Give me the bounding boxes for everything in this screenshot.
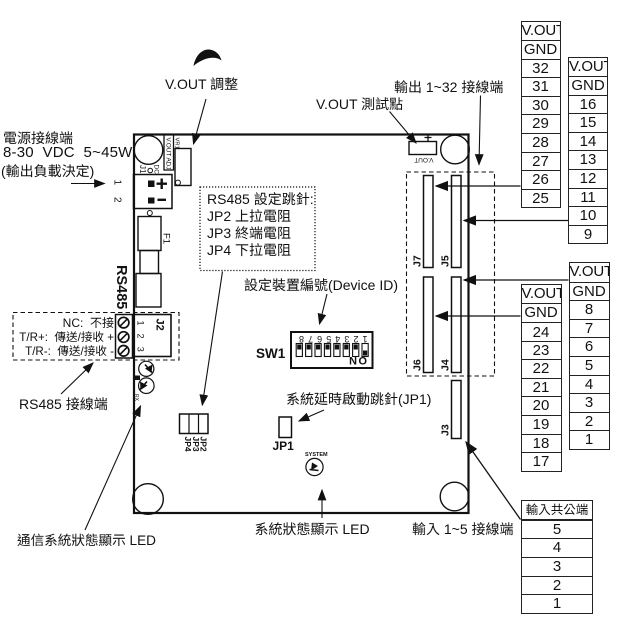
svg-text:RX: RX — [133, 394, 139, 402]
svg-text:J5: J5 — [440, 255, 452, 267]
svg-text:J1: J1 — [138, 165, 147, 174]
svg-text:V.OUT ADJ.: V.OUT ADJ. — [164, 138, 171, 172]
svg-text:J4: J4 — [440, 359, 452, 371]
svg-text:J7: J7 — [412, 255, 424, 267]
svg-text:RS485: RS485 — [113, 265, 129, 309]
svg-text:1: 1 — [112, 180, 123, 186]
svg-text:3: 3 — [136, 347, 146, 352]
svg-text:J6: J6 — [412, 359, 424, 371]
svg-text:ON: ON — [348, 354, 368, 366]
svg-text:2: 2 — [112, 197, 123, 203]
svg-text:DC: DC — [152, 165, 159, 175]
svg-text:JP4: JP4 — [183, 437, 193, 452]
svg-text:F1: F1 — [161, 233, 172, 244]
svg-text:J2: J2 — [154, 319, 166, 331]
svg-text:1 2 3 4 5 6 7 8: 1 2 3 4 5 6 7 8 — [299, 334, 368, 344]
svg-text:VR1: VR1 — [173, 138, 179, 149]
svg-text:1: 1 — [136, 321, 146, 326]
svg-text:V.OUT: V.OUT — [414, 156, 433, 163]
svg-text:J3: J3 — [440, 424, 452, 436]
svg-text:2: 2 — [136, 334, 146, 339]
